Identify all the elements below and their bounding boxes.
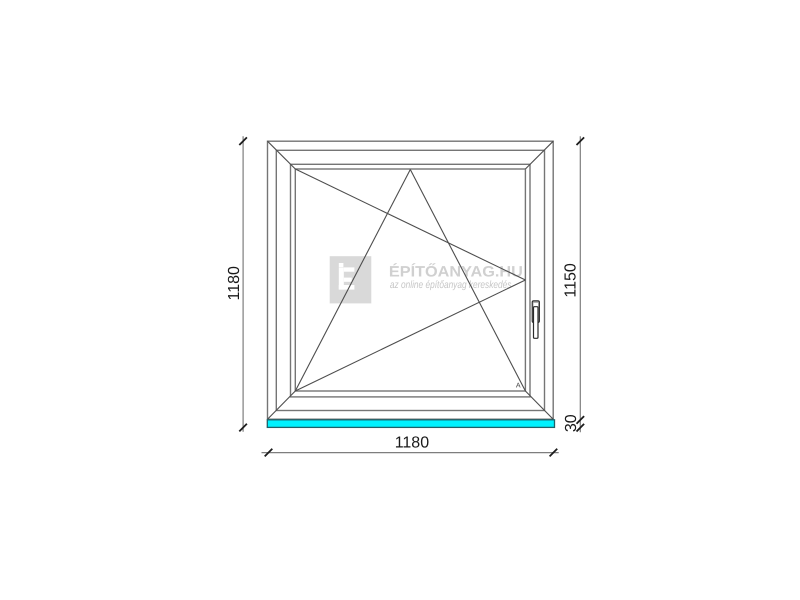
svg-text:1180: 1180: [395, 435, 430, 452]
svg-text:30: 30: [563, 414, 580, 432]
svg-text:1180: 1180: [226, 266, 243, 301]
svg-text:ÉPÍTŐANYAG.HU: ÉPÍTŐANYAG.HU: [389, 262, 523, 280]
svg-text:1150: 1150: [562, 263, 579, 298]
svg-text:A: A: [516, 382, 521, 389]
svg-text:az online építőanyag kereskedé: az online építőanyag kereskedés: [390, 279, 512, 291]
